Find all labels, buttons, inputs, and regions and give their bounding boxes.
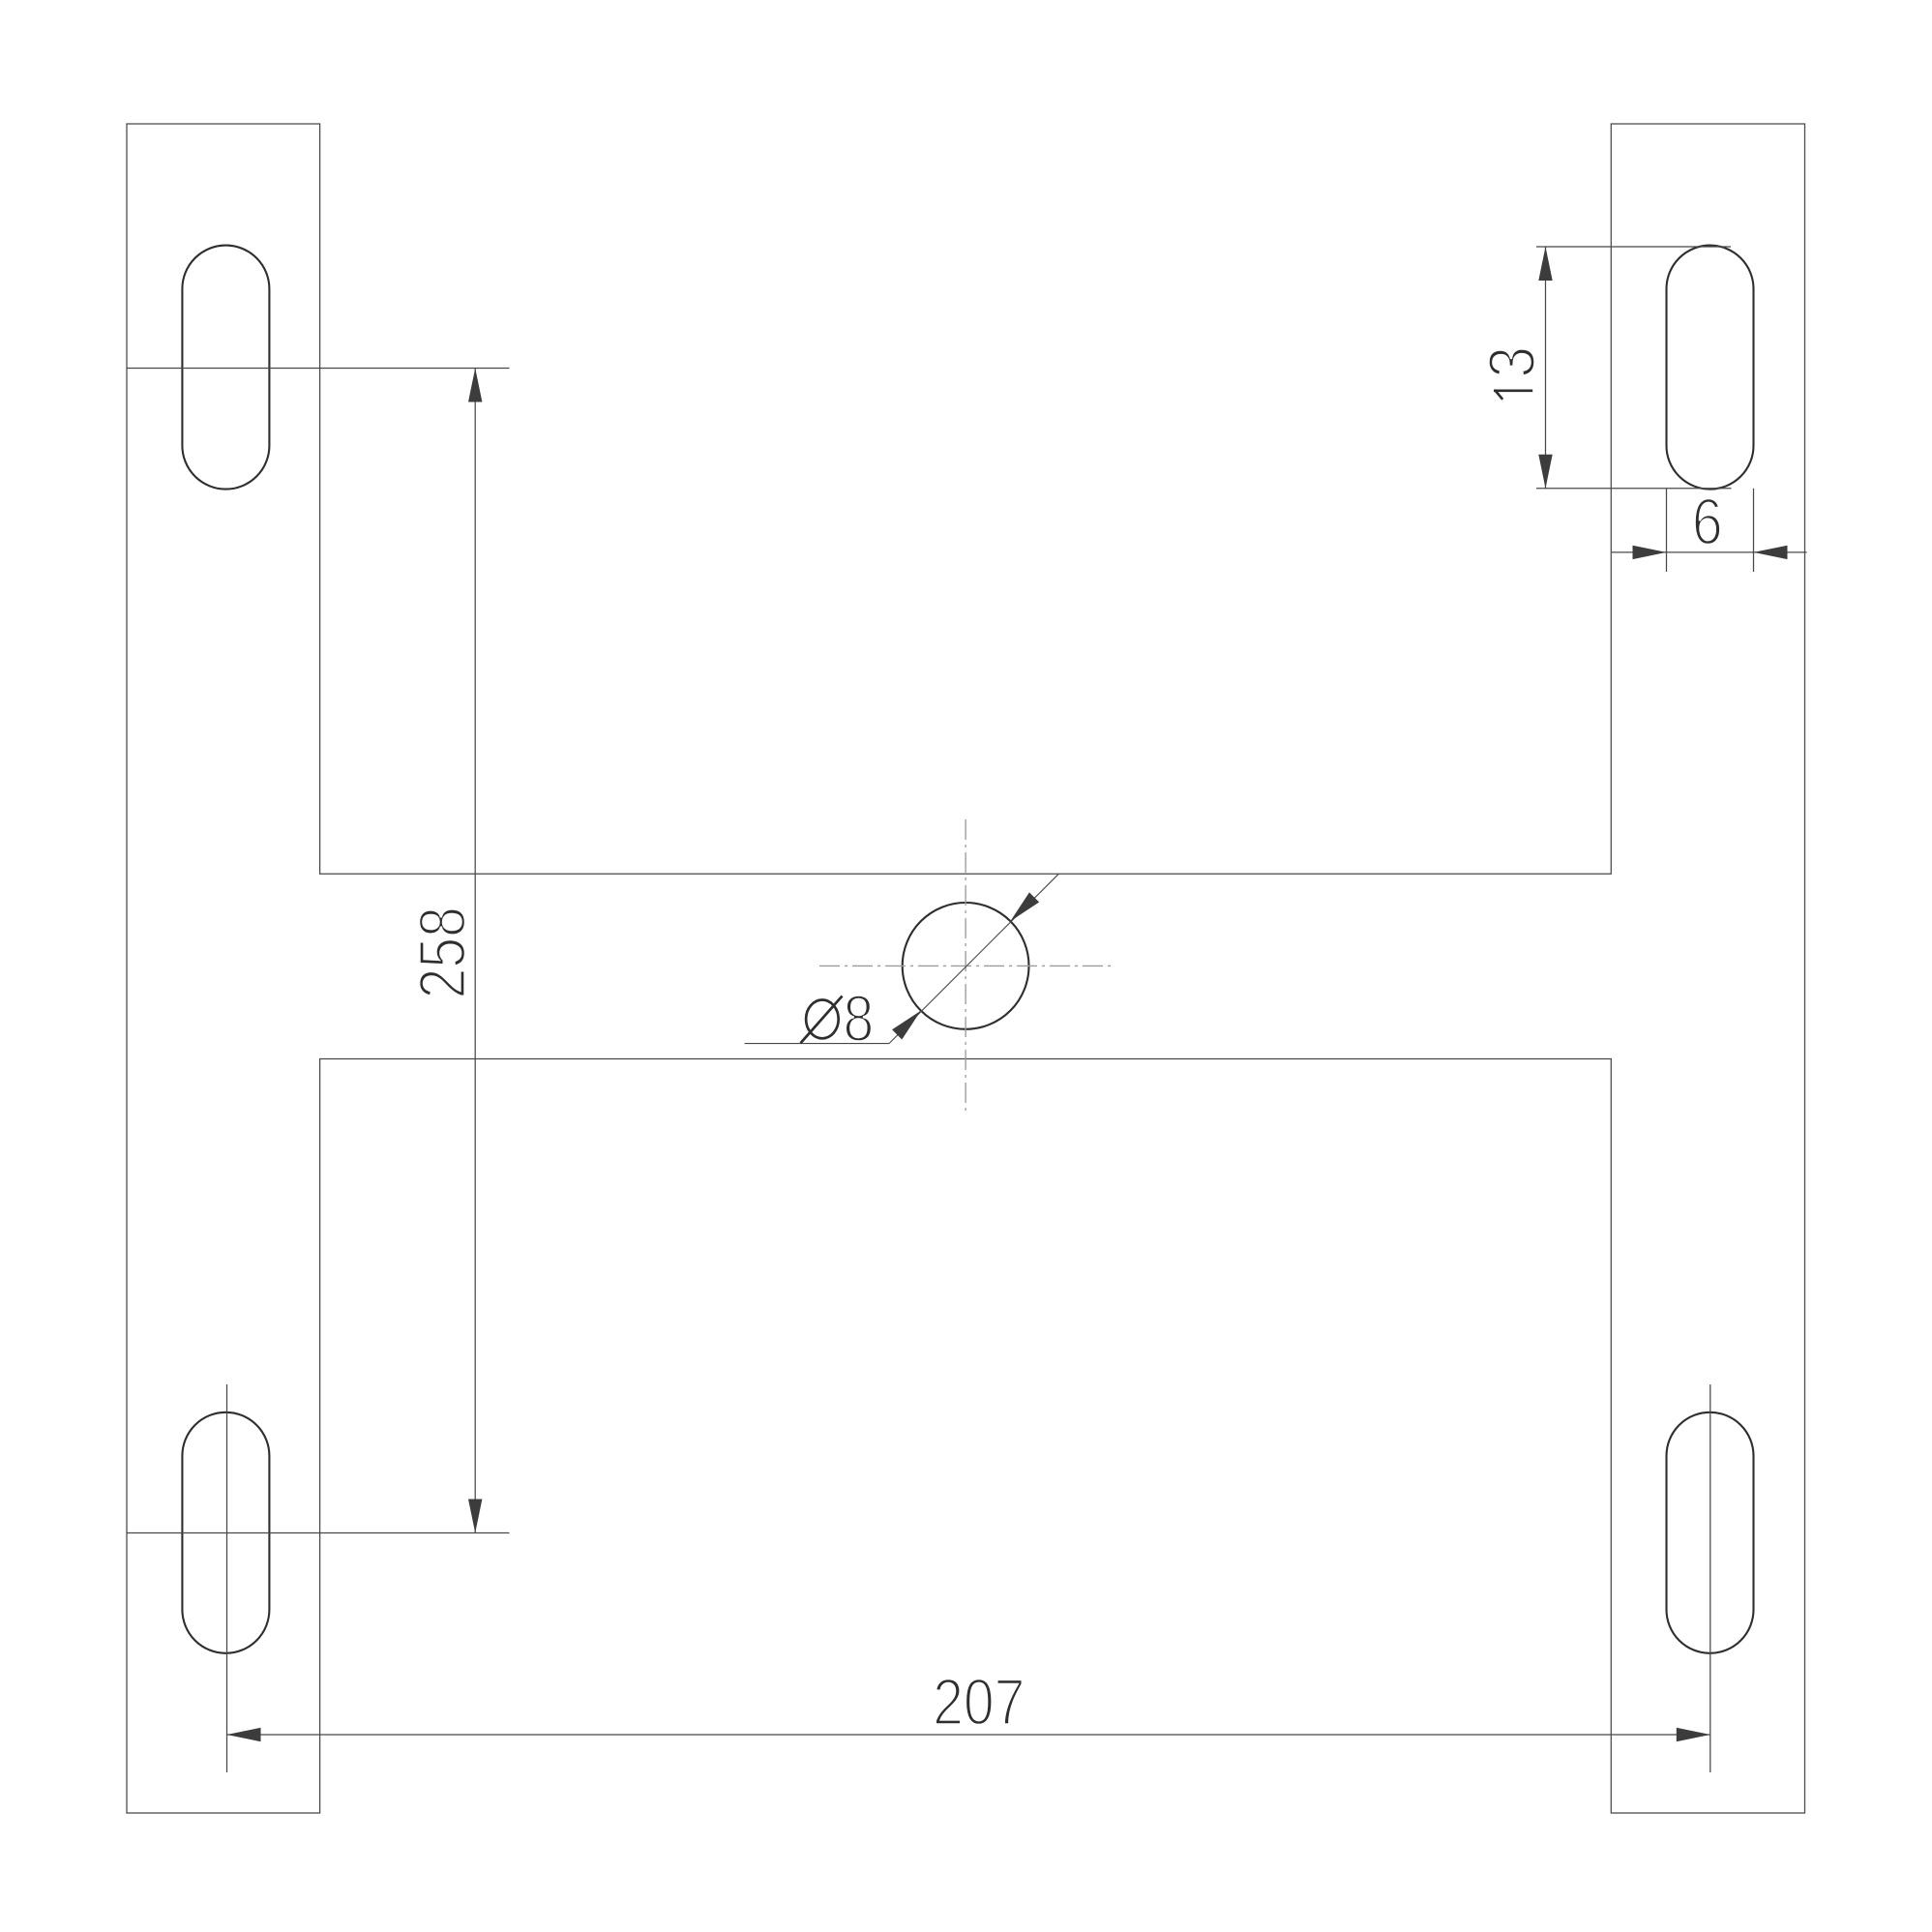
svg-text:3: 3 xyxy=(1476,346,1549,378)
svg-text:6: 6 xyxy=(1692,486,1723,559)
svg-text:207: 207 xyxy=(933,1666,1025,1739)
svg-text:8: 8 xyxy=(844,982,875,1055)
svg-text:258: 258 xyxy=(406,907,480,998)
